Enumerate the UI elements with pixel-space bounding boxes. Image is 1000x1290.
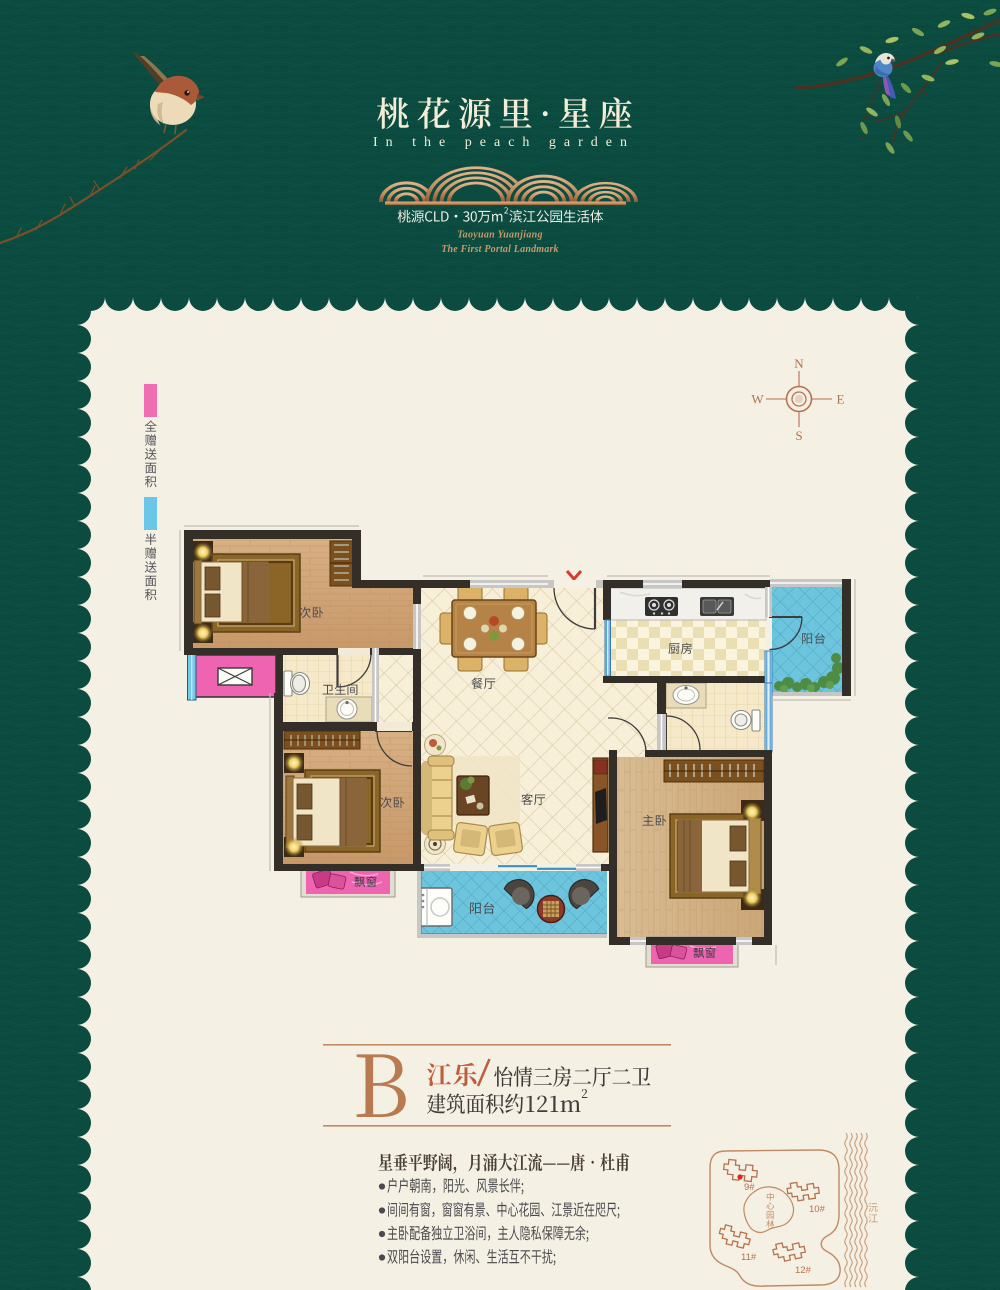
svg-text:E: E: [837, 392, 845, 407]
svg-text:The First Portal Landmark: The First Portal Landmark: [441, 244, 559, 255]
svg-text:11#: 11#: [741, 1252, 757, 1263]
svg-text:W: W: [751, 392, 764, 407]
svg-text:S: S: [795, 428, 802, 443]
svg-text:12#: 12#: [795, 1265, 812, 1276]
svg-text:10#: 10#: [809, 1204, 826, 1215]
svg-text:9#: 9#: [744, 1182, 755, 1193]
svg-text:N: N: [794, 356, 804, 371]
svg-text:In the peach garden: In the peach garden: [373, 135, 635, 150]
svg-text:Taoyuan Yuanjiang: Taoyuan Yuanjiang: [457, 230, 543, 241]
